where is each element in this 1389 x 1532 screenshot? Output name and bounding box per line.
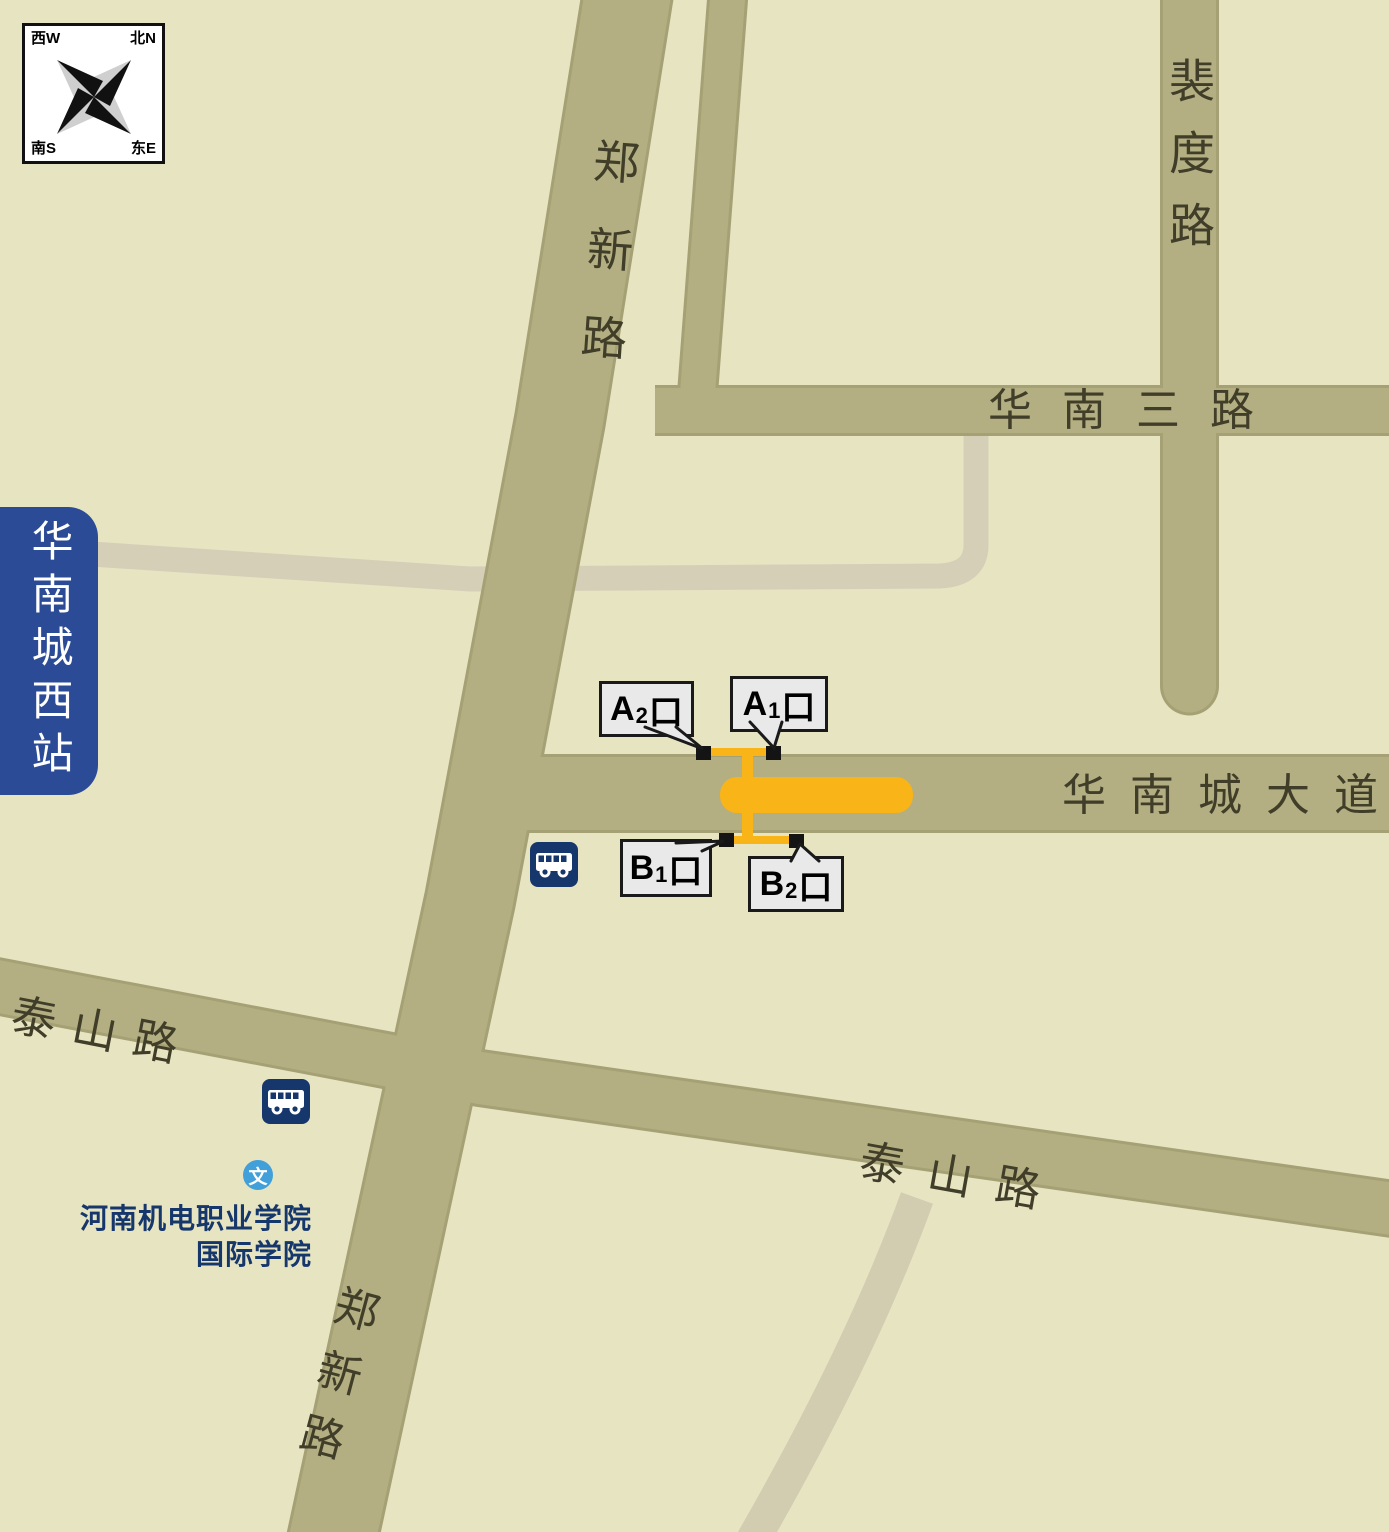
exit-marker-a2 <box>696 746 711 760</box>
road-label-zhengxin-south: 郑新路 <box>286 1280 380 1483</box>
bus-stop-icon <box>530 842 578 887</box>
exit-callout-a2: A2口 <box>599 681 694 737</box>
bus-glyph <box>530 842 578 887</box>
exit-callout-b1: B1口 <box>620 839 712 897</box>
exit-callout-b2: B2口 <box>748 856 844 912</box>
compass-star-icon <box>25 26 162 161</box>
exit-number: 1 <box>768 698 780 724</box>
exit-number: 2 <box>785 878 797 904</box>
exit-suffix: 口 <box>781 680 815 729</box>
road-label-peidu: 裴度路 <box>1166 57 1212 273</box>
minor-road-west <box>0 430 976 579</box>
exit-callout-a1: A1口 <box>730 676 828 732</box>
road-label-zhengxin-north: 郑新路 <box>574 136 638 403</box>
station-name: 华南城西站 <box>28 519 70 784</box>
exit-number: 2 <box>636 703 648 729</box>
exit-letter: A <box>610 690 635 729</box>
bus-stop-icon <box>262 1079 310 1124</box>
school-label-line2: 国际学院 <box>30 1237 312 1273</box>
exit-suffix: 口 <box>649 685 683 734</box>
exit-number: 1 <box>655 862 667 888</box>
road-label-huanancheng-dadao: 华南城大道 <box>1062 774 1389 818</box>
school-label-line1: 河南机电职业学院 <box>30 1201 312 1237</box>
station-area-map: 郑新路 郑新路 裴度路 华南三路 华南城大道 泰山路 泰山路 A2口 A1口 B… <box>0 0 1389 1532</box>
minor-road-south-curve <box>746 1198 917 1532</box>
exit-suffix: 口 <box>668 844 702 893</box>
exit-suffix: 口 <box>798 860 832 909</box>
compass-rose: 西W 北N 南S 东E <box>22 23 165 164</box>
station-name-plate: 华南城西站 <box>0 507 98 795</box>
exit-marker-a1 <box>766 746 781 760</box>
road-label-huanan3: 华南三路 <box>988 389 1284 433</box>
school-icon-char: 文 <box>248 1162 267 1189</box>
exit-letter: B <box>760 865 785 904</box>
school-label: 河南机电职业学院 国际学院 <box>30 1201 312 1273</box>
road-label-taishan-east: 泰山路 <box>856 1138 1068 1218</box>
road-taishan <box>0 982 1389 1210</box>
road-label-taishan-west: 泰山路 <box>7 992 198 1072</box>
bus-glyph <box>262 1079 310 1124</box>
exit-letter: B <box>630 849 655 888</box>
road-north-connector <box>697 0 729 400</box>
exit-marker-b2 <box>789 834 804 848</box>
school-icon: 文 <box>243 1160 273 1190</box>
exit-letter: A <box>743 685 768 724</box>
exit-marker-b1 <box>719 833 734 847</box>
